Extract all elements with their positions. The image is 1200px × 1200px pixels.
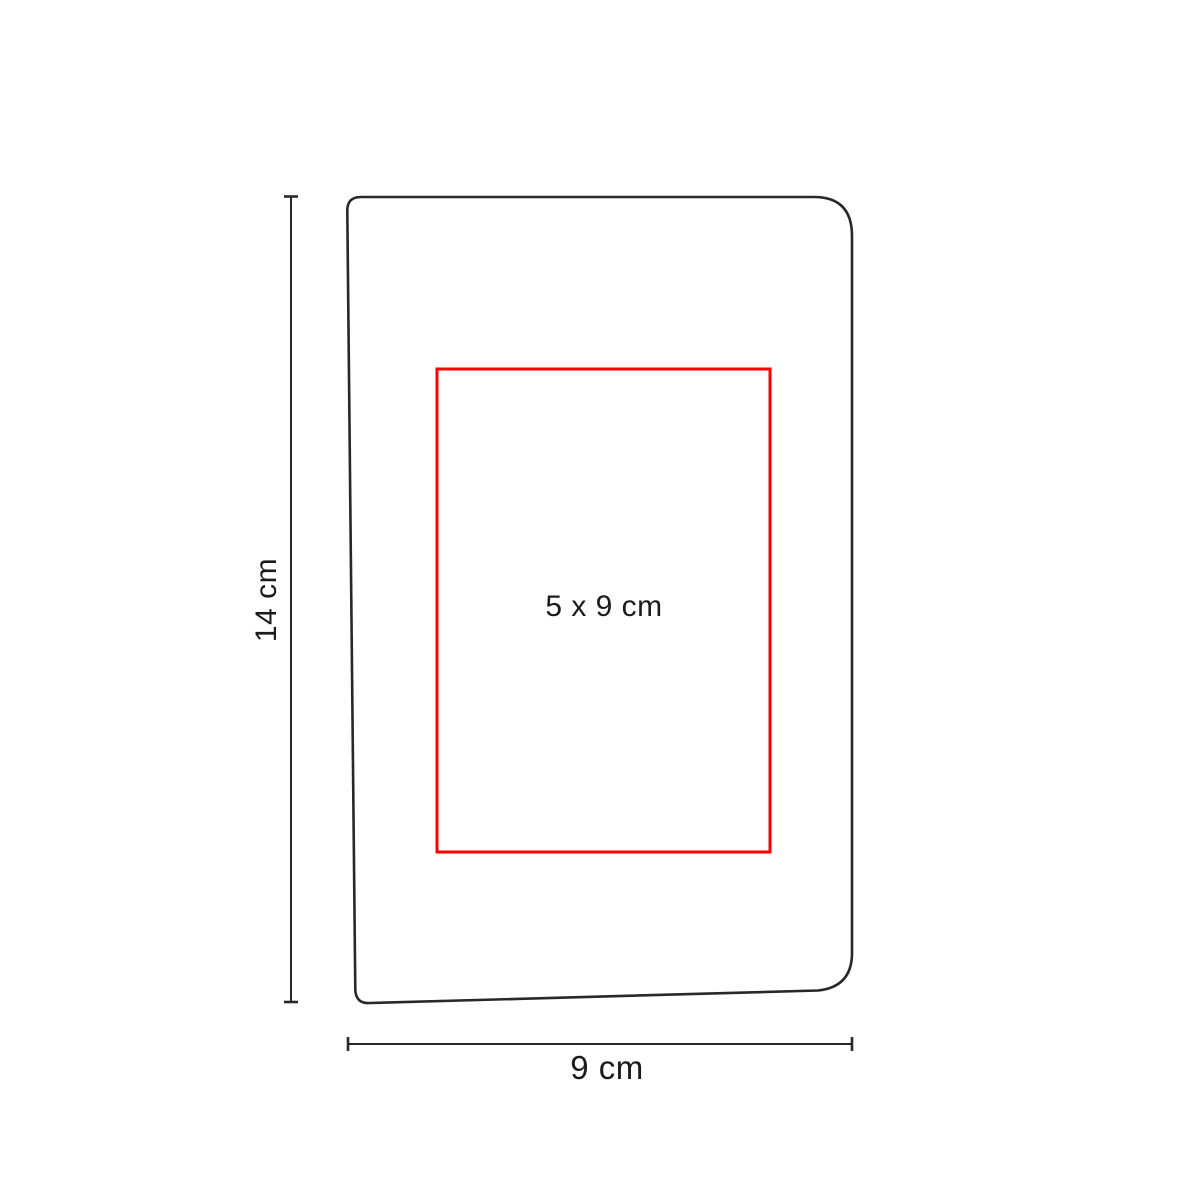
print-area-label: 5 x 9 cm — [504, 588, 704, 626]
product-dimension-diagram: 14 cm 5 x 9 cm 9 cm — [0, 0, 1200, 1200]
width-dimension-label: 9 cm — [507, 1048, 707, 1088]
height-dimension-label: 14 cm — [247, 540, 287, 660]
